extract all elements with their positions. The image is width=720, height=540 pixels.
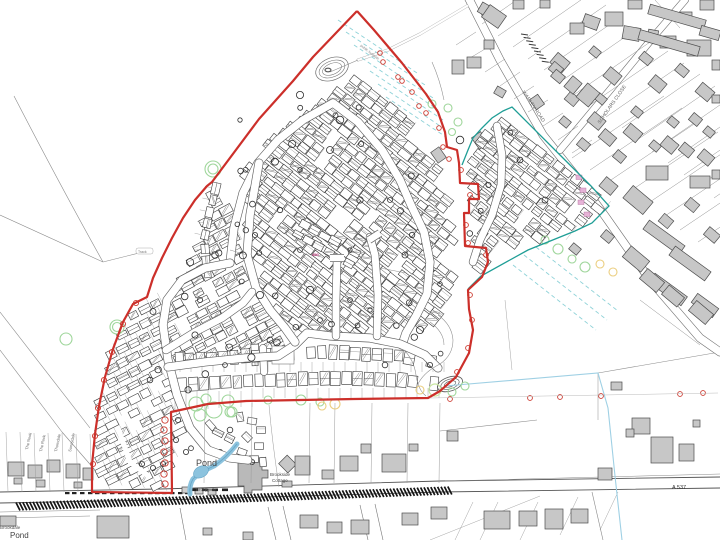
svg-text:Pond: Pond: [10, 531, 29, 540]
svg-text:Brookside: Brookside: [270, 472, 291, 477]
svg-text:LB: LB: [205, 489, 210, 493]
svg-text:Cottage: Cottage: [272, 478, 288, 483]
svg-text:A 537: A 537: [672, 485, 686, 491]
svg-text:Brookdale: Brookdale: [0, 525, 21, 530]
svg-text:Track: Track: [138, 250, 147, 254]
svg-text:450: 450: [312, 252, 319, 257]
svg-text:Pond: Pond: [196, 458, 217, 468]
